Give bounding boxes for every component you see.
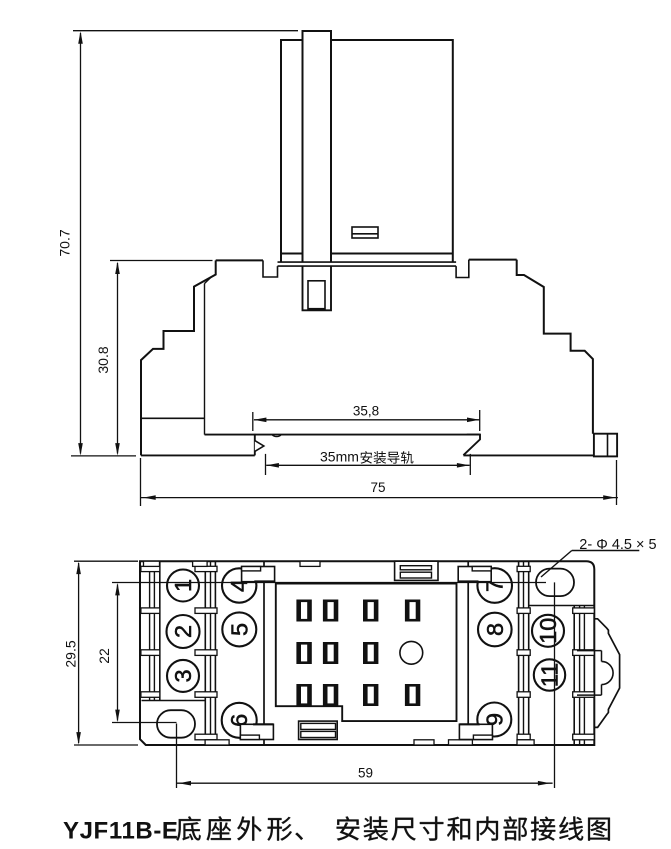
svg-text:35,8: 35,8 <box>353 404 379 419</box>
svg-text:3: 3 <box>170 669 196 682</box>
svg-text:YJF11B-E: YJF11B-E <box>63 818 179 845</box>
svg-text:5: 5 <box>226 623 252 636</box>
svg-text:29.5: 29.5 <box>63 640 79 667</box>
svg-text:59: 59 <box>358 766 373 781</box>
svg-text:11: 11 <box>537 663 563 687</box>
svg-text:70.7: 70.7 <box>57 229 73 256</box>
svg-text:8: 8 <box>482 623 508 636</box>
svg-text:10: 10 <box>535 618 561 644</box>
svg-text:2: 2 <box>170 625 196 638</box>
svg-text:30.8: 30.8 <box>95 346 111 373</box>
svg-text:1: 1 <box>170 579 196 592</box>
svg-text:75: 75 <box>370 480 385 495</box>
svg-text:35mm: 35mm <box>320 449 359 465</box>
svg-text:22: 22 <box>96 648 112 664</box>
